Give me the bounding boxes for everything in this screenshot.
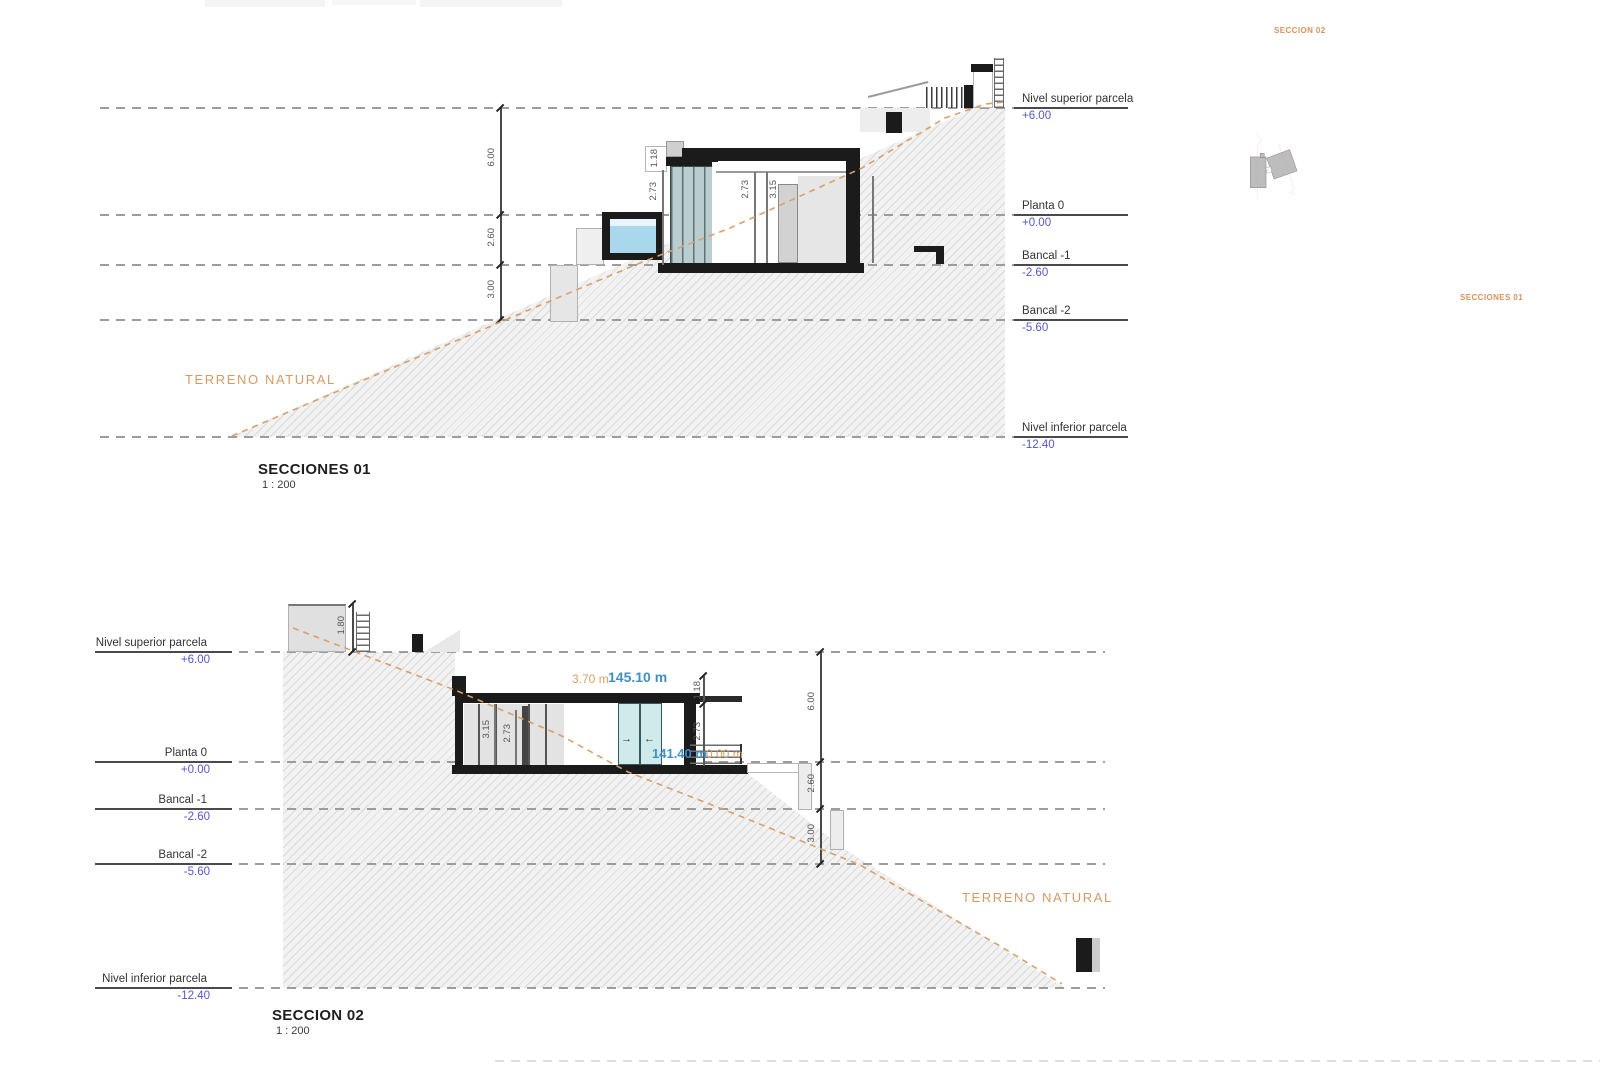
floor-slab (452, 765, 748, 774)
terrace-ledge (747, 763, 802, 773)
site-plan (1240, 8, 1560, 328)
level-underline (95, 808, 232, 810)
level-underline (1014, 214, 1128, 216)
sheet-edge-dashes (495, 1060, 1600, 1062)
level-line-bancal1 (95, 808, 1105, 810)
ramp (424, 630, 460, 652)
vdim-seg1: 6.00 (486, 148, 497, 167)
level-underline (1014, 436, 1128, 438)
dim-structure-height: 3.15 (768, 180, 779, 199)
dim-line (515, 710, 517, 765)
bench-leg (936, 252, 944, 264)
level-line-bancal2 (95, 863, 1105, 865)
pool-water (610, 219, 656, 253)
level-underline (1014, 264, 1128, 266)
vdim-seg2: 2.60 (806, 774, 817, 793)
section1-scale: 1 : 200 (262, 479, 296, 491)
level-value: -5.60 (1022, 322, 1048, 335)
lower-structure (1076, 938, 1092, 972)
annotation-offset: 3.70 m (572, 672, 609, 686)
rooftop-cap (971, 64, 993, 72)
slide-arrow-left: ← (644, 733, 655, 745)
level-label: Planta 0 (95, 747, 207, 760)
glass-head-beam (666, 157, 718, 166)
section1-title: SECCIONES 01 (258, 461, 371, 478)
site-plan-footprint-left (1250, 157, 1266, 188)
level-underline (1014, 319, 1128, 321)
vdim-seg1: 6.00 (806, 692, 817, 711)
terrain-natural-label: TERRENO NATURAL (185, 372, 336, 387)
level-label: Nivel superior parcela (1022, 93, 1133, 106)
level-value: -12.40 (95, 990, 210, 1003)
dim-line (494, 704, 496, 765)
level-label: Bancal -1 (95, 794, 207, 807)
level-value: -2.60 (95, 811, 210, 824)
level-value: +0.00 (95, 764, 210, 777)
level-label: Bancal -2 (1022, 305, 1071, 318)
level-value: +6.00 (95, 654, 210, 667)
scan-artifact (332, 0, 416, 5)
retaining-wall (576, 228, 604, 265)
section2-title: SECCION 02 (272, 1007, 364, 1024)
annotation-floor-level: 141.40 m (652, 746, 707, 761)
dim-room-height: 2.73 (502, 724, 513, 743)
dim-glass-height: 2.73 (648, 182, 659, 201)
door-mullion (639, 703, 641, 765)
level-underline (95, 987, 232, 989)
section-line-01-label: SECCIONES 01 (1460, 293, 1523, 302)
scan-artifact (420, 0, 562, 7)
vdim-seg2: 2.60 (486, 228, 497, 247)
interior-door (778, 184, 798, 263)
level-label: Nivel inferior parcela (1022, 422, 1127, 435)
level-value: -12.40 (1022, 439, 1055, 452)
level-label: Planta 0 (1022, 200, 1064, 213)
section1-terrain-hatch (230, 103, 1005, 437)
mullion (478, 704, 480, 765)
level-label: Bancal -2 (95, 849, 207, 862)
railing-post (964, 85, 973, 108)
section2-scale: 1 : 200 (276, 1025, 310, 1037)
section-line-02-label: SECCION 02 (1274, 26, 1326, 35)
level-underline (95, 761, 232, 763)
level-underline (1014, 107, 1128, 109)
dim-structure-height: 3.15 (481, 720, 492, 739)
mullion (545, 704, 547, 765)
terrain-natural-label: TERRENO NATURAL (962, 890, 1113, 905)
retaining-wall (830, 810, 844, 850)
vdim-seg3: 3.00 (486, 280, 497, 299)
sections-drawing-sheet: 1.18 2.73 2.73 3.15 (0, 0, 1600, 1067)
post (872, 176, 874, 263)
level-value: +6.00 (1022, 110, 1051, 123)
level-label: Bancal -1 (1022, 250, 1071, 263)
ceiling-line (716, 171, 846, 173)
ramp-edge (868, 81, 929, 97)
dim-line (662, 170, 664, 265)
dim-right-room-height: 2.73 (692, 722, 703, 741)
rooftop-volume (973, 68, 993, 108)
dim-parapet: 1.18 (692, 681, 703, 700)
scan-artifact (205, 0, 325, 7)
glazing-panels (670, 166, 716, 265)
retaining-black (886, 112, 902, 133)
right-wall (846, 148, 860, 263)
post (412, 634, 423, 652)
level-underline (95, 863, 232, 865)
level-value: +0.00 (1022, 217, 1051, 230)
level-label: Nivel superior parcela (95, 637, 207, 650)
vdim-seg3: 3.00 (806, 824, 817, 843)
dim-line (352, 604, 354, 652)
level-line-inferior (100, 436, 1128, 438)
level-line-superior (95, 651, 1105, 653)
retaining-wall (550, 265, 578, 322)
floor-slab (658, 263, 864, 273)
dim-line (754, 172, 756, 263)
mullion (528, 704, 530, 765)
level-value: -2.60 (1022, 267, 1048, 280)
ladder (994, 58, 1004, 108)
ladder (356, 612, 370, 652)
dim-room-height: 2.73 (740, 180, 751, 199)
level-underline (95, 651, 232, 653)
level-line-bancal1 (100, 264, 1128, 266)
level-line-bancal2 (100, 319, 1128, 321)
stair-railing (926, 87, 966, 108)
slide-arrow-right: → (621, 733, 632, 745)
door-leaf (522, 706, 528, 765)
annotation-roof-level: 145.10 m (608, 669, 667, 685)
dim-wall-height: 1.80 (336, 616, 347, 635)
level-line-inferior (95, 987, 1105, 989)
level-value: -5.60 (95, 866, 210, 879)
dim-parapet: 1.18 (649, 149, 660, 168)
interior-wall-shade (798, 176, 846, 263)
site-plan-footprint-bump (1260, 153, 1264, 157)
level-label: Nivel inferior parcela (95, 973, 207, 986)
annotation-zero-level: 0.00 m (706, 747, 743, 761)
site-plan-stair-notch (1266, 167, 1272, 173)
lower-structure-side (1092, 938, 1100, 972)
